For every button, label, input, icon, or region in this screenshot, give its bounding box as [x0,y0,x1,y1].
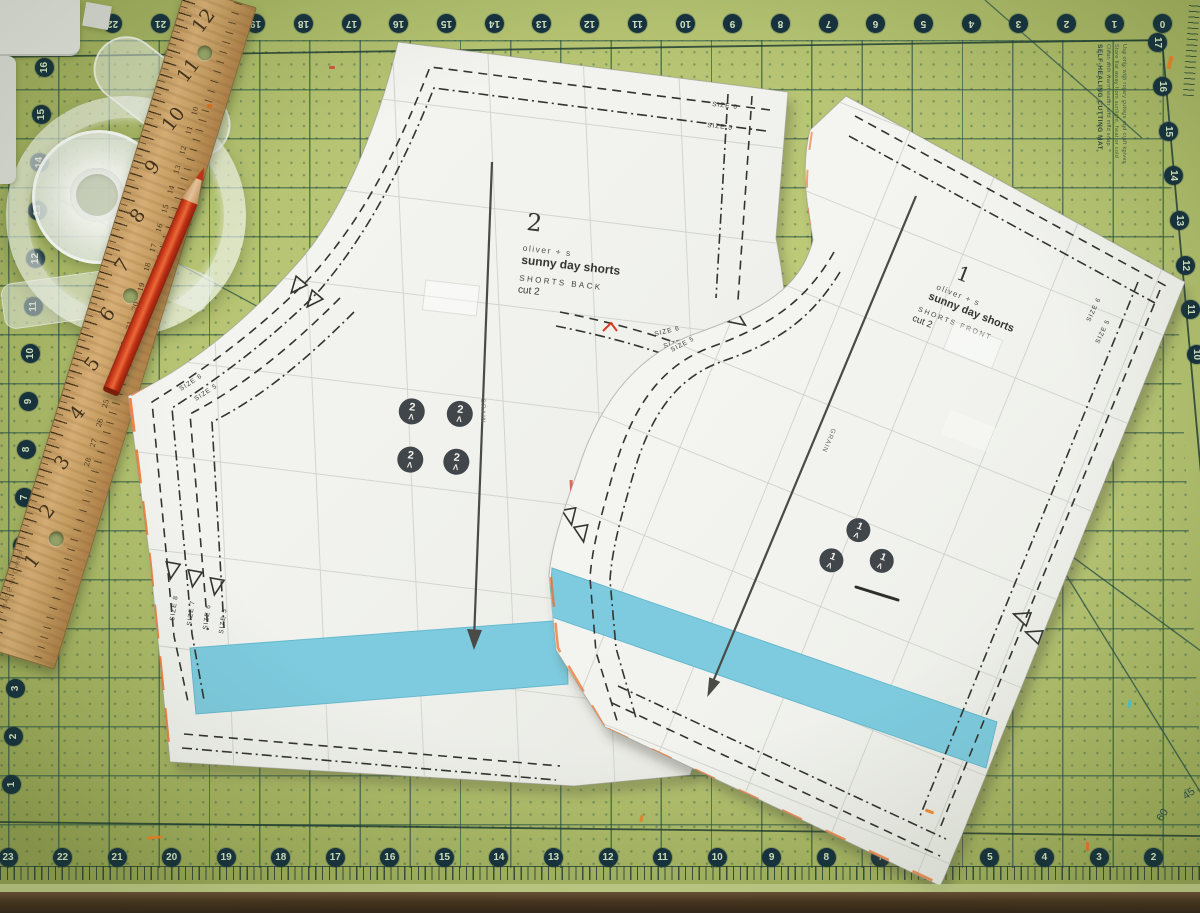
pattern-piece-shorts-front: GRAIN 1 oliver + s sunny day shorts SHOR… [0,0,1200,913]
white-paper-scrap [0,0,80,56]
mat-edge-highlight [0,884,1200,892]
white-paper-scrap [82,2,112,30]
photo-sewing-pattern-on-cutting-mat: 45 60 2322212019181716151413121110987654… [0,0,1200,913]
white-paper-scrap [0,56,16,184]
table-surface [0,892,1200,913]
